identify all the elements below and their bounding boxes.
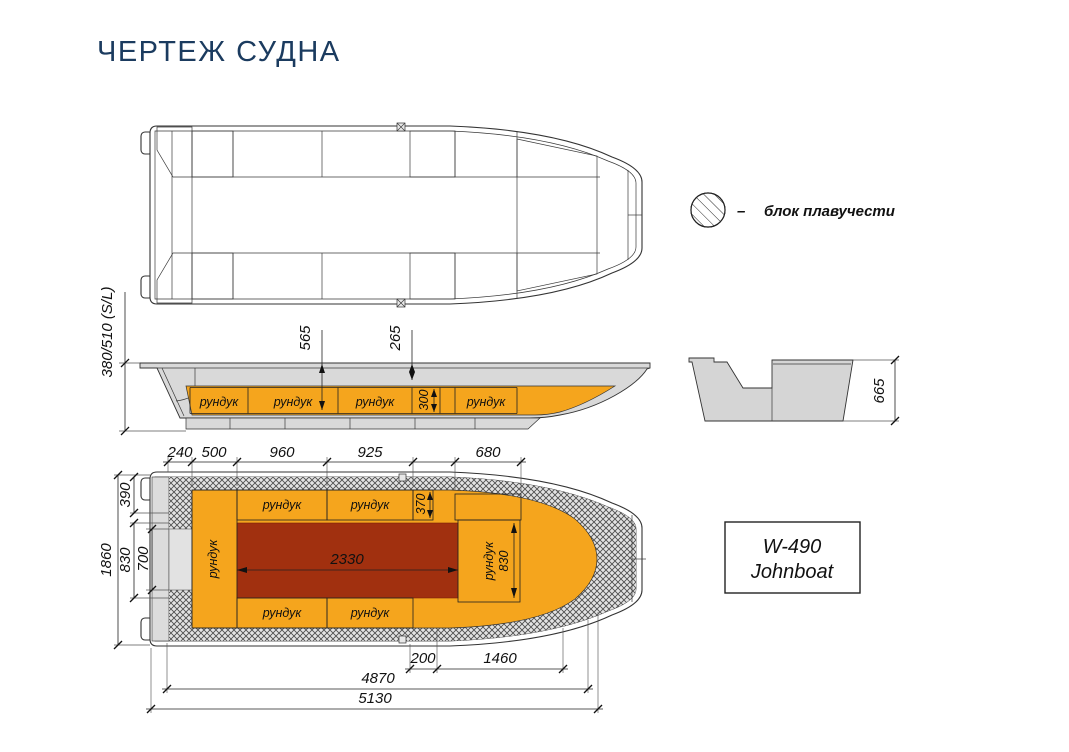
dim-830: 830 bbox=[117, 547, 134, 573]
dim-200: 200 bbox=[409, 650, 436, 667]
transom-band bbox=[152, 477, 169, 641]
svg-text:830: 830 bbox=[497, 551, 511, 572]
locker-label: рундук bbox=[199, 395, 240, 409]
dim-390: 390 bbox=[117, 482, 134, 508]
ship-drawing: – блок плавучести bbox=[0, 0, 1069, 752]
deck-fitting-bottom bbox=[399, 636, 406, 643]
dim-300: 300 bbox=[417, 390, 431, 411]
keel-strip bbox=[186, 418, 540, 429]
legend-dash: – bbox=[737, 203, 745, 220]
locker-band bbox=[186, 386, 615, 415]
hull-outline bbox=[150, 126, 642, 304]
locker-label: рундук bbox=[206, 539, 220, 580]
transom-recess bbox=[169, 529, 192, 590]
deck-fitting-top bbox=[399, 474, 406, 481]
dim-500: 500 bbox=[201, 444, 227, 461]
dim-1860: 1860 bbox=[98, 543, 115, 577]
svg-text:265: 265 bbox=[387, 325, 404, 352]
dim-700: 700 bbox=[135, 546, 152, 572]
top-view bbox=[141, 123, 642, 307]
dim-1460: 1460 bbox=[483, 650, 517, 667]
dim-960: 960 bbox=[269, 444, 295, 461]
bottom-view: рундук рундук рундук рундук рундук рунду… bbox=[98, 444, 646, 713]
locker-label: рундук bbox=[355, 395, 396, 409]
svg-text:565: 565 bbox=[297, 325, 314, 351]
model-type: Johnboat bbox=[750, 561, 835, 583]
dim-240: 240 bbox=[166, 444, 193, 461]
drawing-page: ЧЕРТЕЖ СУДНА bbox=[0, 0, 1069, 752]
transom-section bbox=[689, 358, 853, 421]
dim-4870: 4870 bbox=[361, 670, 395, 687]
legend-label: блок плавучести bbox=[764, 203, 895, 220]
locker-label: рундук bbox=[262, 498, 303, 512]
model-name: W-490 bbox=[763, 536, 822, 558]
svg-text:380/510 (S/L): 380/510 (S/L) bbox=[99, 287, 116, 378]
cross-section-view: 665 bbox=[689, 356, 899, 425]
svg-text:2330: 2330 bbox=[329, 551, 364, 568]
model-label-box: W-490 Johnboat bbox=[725, 522, 860, 593]
dim-depth: 380/510 (S/L) bbox=[99, 287, 186, 435]
buoyancy-legend: – блок плавучести bbox=[691, 193, 895, 227]
dim-370: 370 bbox=[414, 492, 433, 518]
dim-925: 925 bbox=[357, 444, 383, 461]
locker-label: рундук bbox=[262, 606, 303, 620]
locker-label: рундук bbox=[350, 498, 391, 512]
locker-label: рундук bbox=[273, 395, 314, 409]
dim-5130: 5130 bbox=[358, 690, 392, 707]
side-view: рундук рундук рундук рундук 300 380/510 … bbox=[99, 287, 650, 435]
deck-fitting-top bbox=[397, 123, 405, 131]
locker-label: рундук bbox=[466, 395, 507, 409]
svg-text:370: 370 bbox=[414, 494, 428, 515]
locker-label: рундук bbox=[350, 606, 391, 620]
svg-text:665: 665 bbox=[871, 378, 888, 404]
dim-680: 680 bbox=[475, 444, 501, 461]
deck-fitting-bottom bbox=[397, 299, 405, 307]
locker-label: рундук bbox=[482, 541, 496, 582]
